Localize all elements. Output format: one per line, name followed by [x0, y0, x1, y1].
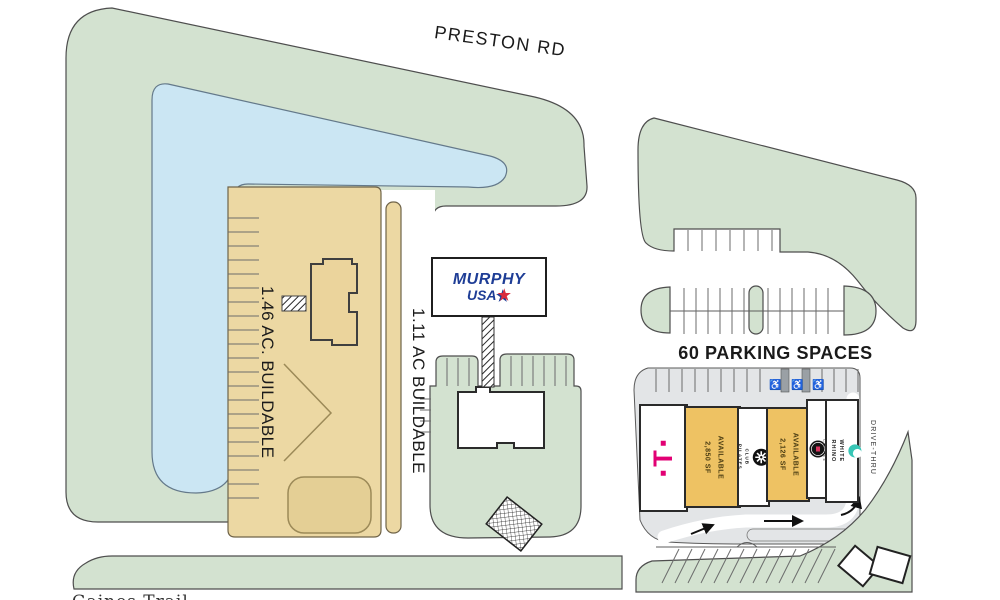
tenant-unit-t-mobile: T [639, 404, 688, 512]
drive-thru-label: DRIVE-THRU [869, 420, 876, 475]
murphy-sign-line2: USA ★ [467, 288, 511, 303]
right-landscape-area [638, 118, 916, 331]
t-mobile-dot-icon [661, 470, 666, 475]
pad-site [288, 477, 371, 533]
white-rhino-name: WHITE RHINO [828, 436, 845, 466]
tenant-unit-white-rhino: WHITE RHINO COFFEE [825, 399, 859, 503]
site-plan: ♿ ♿ ♿ PRESTON RD 1.46 AC. BUILDABLE 1.11… [0, 0, 1000, 600]
white-rhino-icon [847, 443, 863, 459]
murphy-building-footprint [458, 387, 544, 448]
sign-post [482, 317, 494, 387]
murphy-usa-text: USA [467, 288, 497, 302]
available-status: AVAILABLE [714, 435, 725, 479]
tenant-unit-available-1: AVAILABLE 2,850 SF [684, 406, 741, 508]
murphy-usa-sign: MURPHY USA ★ [431, 257, 547, 317]
white-rhino-sub: COFFEE [821, 439, 826, 462]
t-mobile-letter: T [650, 450, 677, 467]
parking-stripes [228, 218, 259, 498]
available-size: 2,126 SF [777, 438, 788, 470]
bottom-landscape-strip [73, 556, 622, 589]
parking-count-label: 60 PARKING SPACES [668, 343, 883, 364]
parking-stripes [688, 230, 772, 251]
handicap-icon: ♿ [812, 378, 824, 391]
parking-end-island [641, 287, 670, 333]
murphy-star-icon: ★ [498, 288, 511, 303]
t-mobile-logo: T [650, 441, 677, 476]
hatched-marker [282, 296, 306, 311]
parcel-label-111: 1.11 AC BUILDABLE [408, 308, 428, 474]
available-status: AVAILABLE [789, 433, 800, 477]
bottom-road-label-clipped: Gaines Trail [72, 592, 352, 600]
t-mobile-dot-icon [661, 441, 666, 446]
available-size: 2,850 SF [701, 441, 712, 473]
handicap-icon: ♿ [791, 378, 803, 391]
handicap-icon: ♿ [769, 378, 781, 391]
murphy-sign-line1: MURPHY [453, 272, 525, 288]
buildable-strip-111 [386, 202, 401, 533]
parcel-label-146: 1.46 AC. BUILDABLE [257, 286, 277, 458]
tenant-unit-available-2: AVAILABLE 2,126 SF [766, 407, 810, 502]
parking-mid-island [749, 286, 763, 334]
club-pilates-name: CLUB PILATES [736, 443, 750, 472]
loading-zone-stripe [781, 369, 789, 392]
